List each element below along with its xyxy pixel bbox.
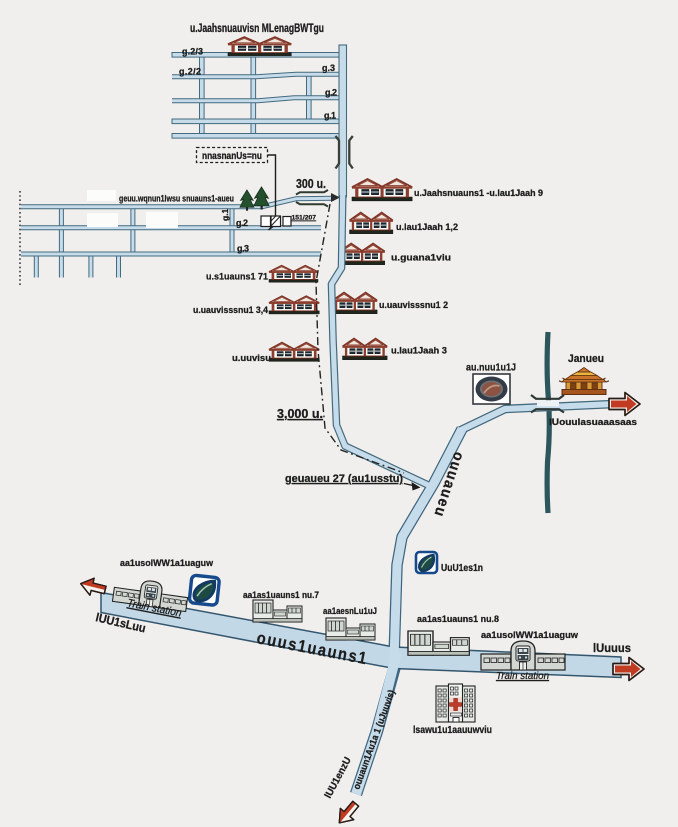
svg-text:u.uuvisu: u.uuvisu — [232, 353, 271, 364]
svg-text:aa1usolWW1a1uaguw: aa1usolWW1a1uaguw — [120, 558, 214, 569]
svg-text:u.lau1Jaah 1,2: u.lau1Jaah 1,2 — [396, 222, 458, 233]
svg-text:g.2: g.2 — [236, 218, 248, 228]
svg-text:au.nuu1u1J: au.nuu1u1J — [466, 363, 516, 374]
svg-text:g.2: g.2 — [325, 88, 337, 98]
svg-text:aa1as1uauns1 nu.7: aa1as1uauns1 nu.7 — [243, 590, 319, 601]
svg-text:geuaueu 27 (au1usstu): geuaueu 27 (au1usstu) — [285, 473, 403, 485]
svg-text:u.lau1Jaah 3: u.lau1Jaah 3 — [391, 346, 447, 357]
svg-text:aa1as1uauns1 nu.8: aa1as1uauns1 nu.8 — [417, 614, 499, 625]
svg-text:g.3: g.3 — [322, 63, 335, 73]
svg-text:g.2/2: g.2/2 — [179, 67, 201, 77]
svg-text:UuU1es1n: UuU1es1n — [441, 563, 483, 574]
svg-text:u.s1uauns1 71: u.s1uauns1 71 — [206, 272, 269, 283]
svg-text:lUouulasuaaasaas: lUouulasuaaasaas — [549, 417, 637, 428]
svg-text:3,000 u.: 3,000 u. — [277, 407, 323, 421]
svg-text:u.uauvisssnu1 3,4: u.uauvisssnu1 3,4 — [193, 305, 269, 316]
svg-text:aa1aesnLu1uJ: aa1aesnLu1uJ — [323, 606, 377, 617]
svg-text:u.Jaahsnuauns1 -u.lau1Jaah 9: u.Jaahsnuauns1 -u.lau1Jaah 9 — [414, 188, 543, 199]
svg-text:g.3: g.3 — [237, 244, 249, 254]
svg-text:g.1: g.1 — [324, 111, 336, 121]
svg-text:300 u.: 300 u. — [296, 177, 326, 191]
svg-text:aa1usolWW1a1uaguw: aa1usolWW1a1uaguw — [481, 630, 579, 641]
svg-text:u.guana1viu: u.guana1viu — [391, 253, 451, 264]
svg-text:u.Jaahsnuauvisn MLenagBWTgu: u.Jaahsnuauvisn MLenagBWTgu — [190, 23, 324, 35]
svg-text:g.1: g.1 — [220, 208, 230, 221]
svg-text:151/207: 151/207 — [292, 215, 317, 222]
svg-text:u.uauvisssnu1 2: u.uauvisssnu1 2 — [379, 300, 448, 311]
svg-text:nnasnanUs=nu: nnasnanUs=nu — [202, 150, 262, 162]
svg-text:Train station: Train station — [496, 670, 549, 682]
svg-text:g.2/3: g.2/3 — [182, 47, 203, 57]
svg-text:lUuuus: lUuuus — [593, 641, 631, 655]
svg-text:lsawu1u1aauuwviu: lsawu1u1aauuwviu — [413, 725, 492, 736]
svg-text:geuu.wqnun1lwsu snuauns1-aueu: geuu.wqnun1lwsu snuauns1-aueu — [119, 194, 234, 204]
svg-text:Janueu: Janueu — [568, 353, 604, 365]
